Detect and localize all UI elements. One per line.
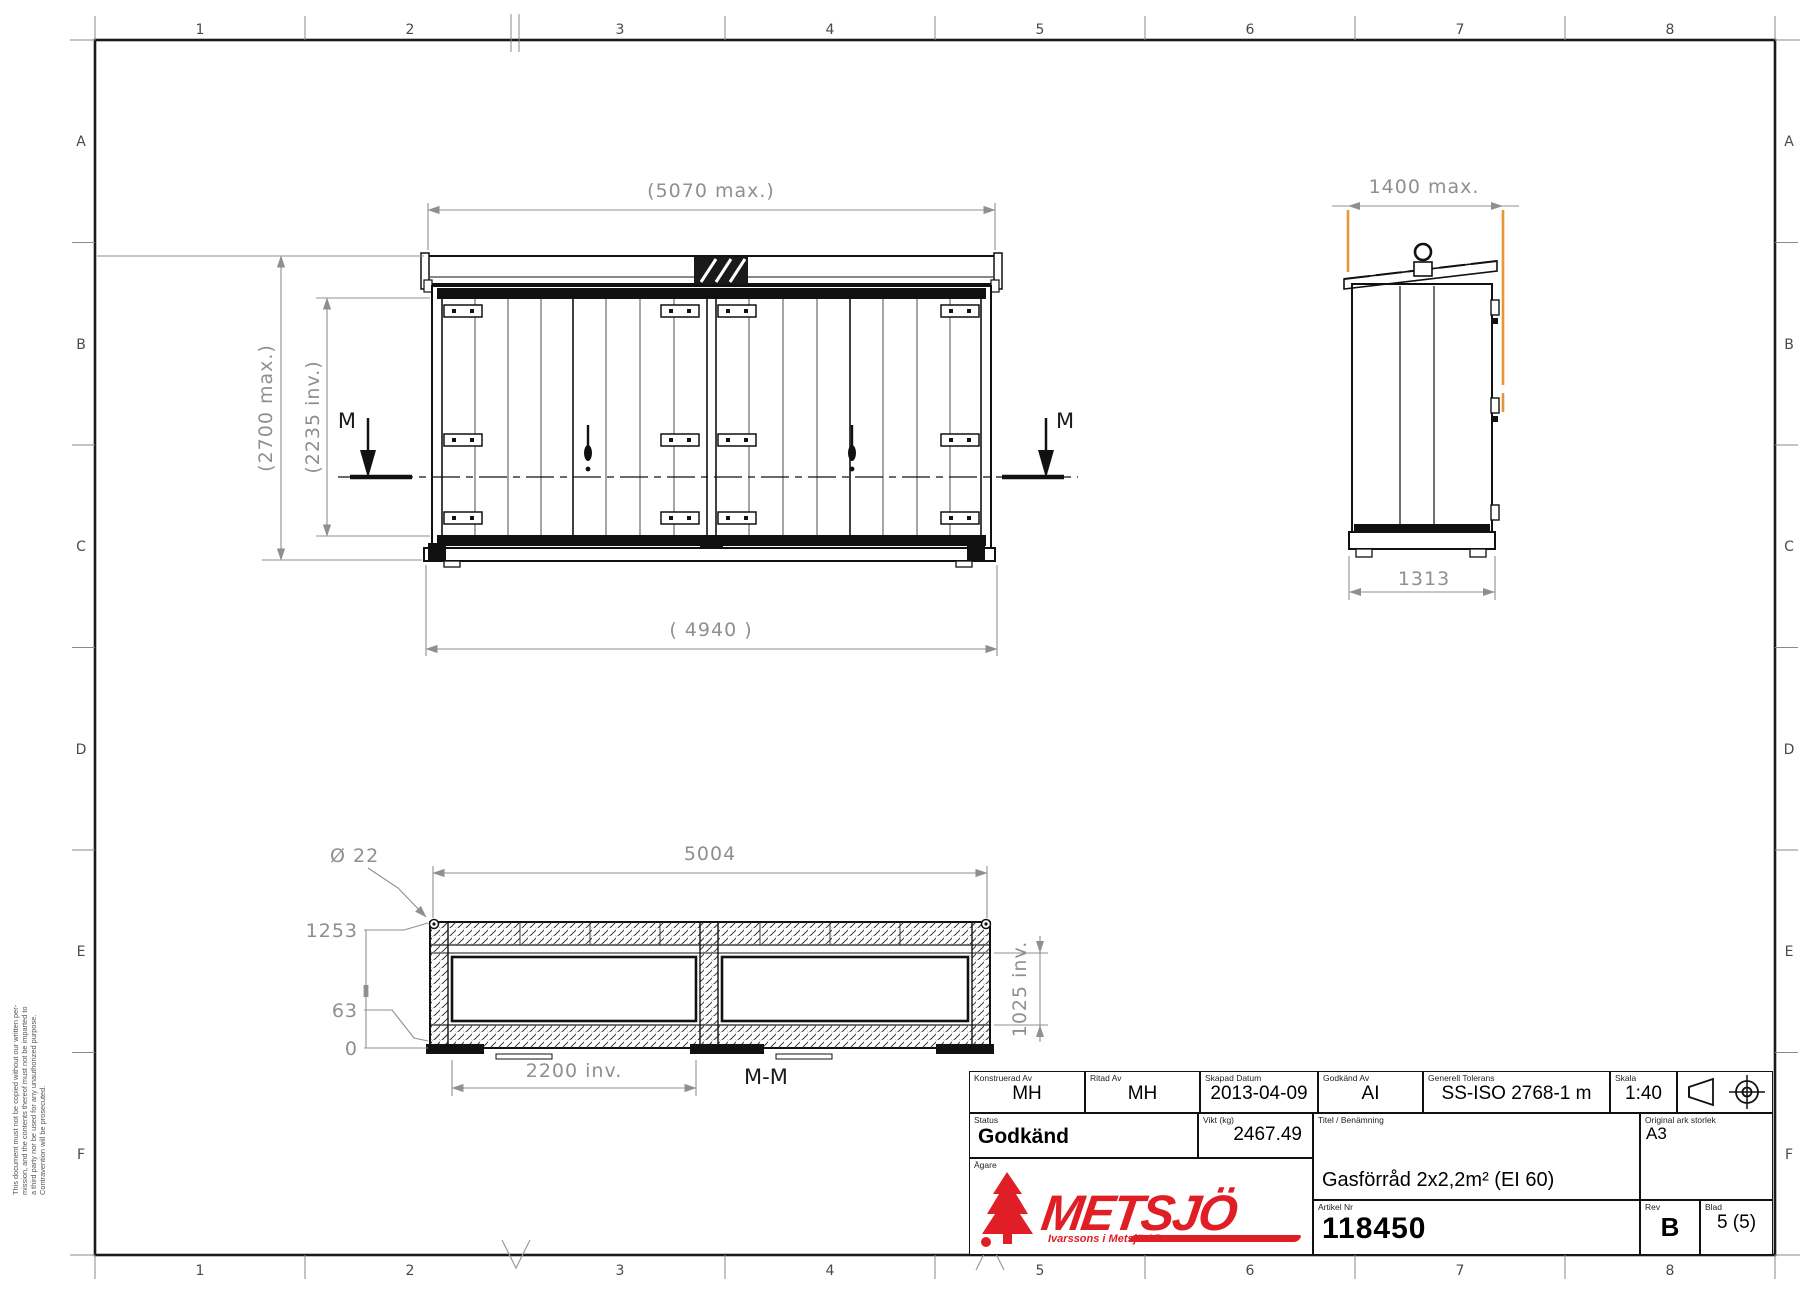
drawing-sheet: 1 2 3 4 5 6 7 8 1 2 3 4 5 6 7 8 A B C D …: [0, 0, 1800, 1292]
section-dim-inner-depth-label: 1025 inv.: [1009, 941, 1031, 1038]
copyright-line: a third party nor be used for any unauth…: [29, 1015, 38, 1195]
grid-col-label: 3: [616, 1263, 625, 1279]
field-drawn-by: Ritad Av MH: [1085, 1071, 1200, 1113]
field-label: Status: [970, 1114, 1197, 1125]
side-body: [1352, 284, 1499, 532]
front-view: (5070 max.): [97, 180, 1078, 656]
front-dim-height-max-label: (2700 max.): [255, 344, 277, 472]
field-owner: Ägare METSJÖ Ivarssons i Metsjö AB: [969, 1158, 1313, 1255]
field-status: Status Godkänd: [969, 1113, 1198, 1158]
grid-col-label: 4: [826, 1263, 835, 1279]
field-value: 5 (5): [1717, 1213, 1756, 1234]
field-label: Ägare: [970, 1159, 1312, 1170]
field-weight: Vikt (kg) 2467.49: [1198, 1113, 1313, 1158]
field-label: Blad: [1701, 1201, 1772, 1212]
side-highlight-lines: [1348, 210, 1503, 412]
field-label: Ritad Av: [1086, 1072, 1199, 1083]
grid-col-label: 1: [196, 1263, 205, 1279]
field-value: 2467.49: [1233, 1125, 1312, 1146]
side-view: 1400 max.: [1332, 176, 1519, 600]
section-dim-width-label: 5004: [684, 843, 736, 865]
field-value: 118450: [1314, 1212, 1639, 1245]
grid-col-label: 3: [616, 22, 625, 38]
copyright-line: This document must not be copied without…: [11, 1004, 20, 1195]
grid-col-label: 7: [1456, 22, 1465, 38]
field-value: 1:40: [1625, 1084, 1662, 1105]
side-roof: [1344, 244, 1497, 289]
section-label-mm: M-M: [744, 1065, 788, 1089]
field-article-number: Artikel Nr 118450: [1313, 1200, 1640, 1255]
grid-row-label: D: [76, 742, 87, 758]
field-value: Godkänd: [970, 1125, 1197, 1148]
front-dim-height-inner: [316, 298, 430, 536]
grid-col-label: 6: [1246, 1263, 1255, 1279]
section-ord-zero-label: 0: [345, 1038, 358, 1060]
grid-row-label: F: [1785, 1147, 1793, 1163]
field-label: Generell Tolerans: [1424, 1072, 1609, 1083]
grid-col-label: 2: [406, 22, 415, 38]
field-revision: Rev B: [1640, 1200, 1700, 1255]
section-ord-mid-label: 63: [332, 1000, 358, 1022]
drawing-title: Gasförråd 2x2,2m² (EI 60): [1314, 1169, 1639, 1199]
field-value: AI: [1362, 1084, 1380, 1105]
field-label: Titel / Benämning: [1314, 1114, 1639, 1125]
section-marker-m-right: M: [1056, 409, 1074, 433]
field-value: 2013-04-09: [1210, 1084, 1307, 1105]
grid-col-label: 5: [1036, 1263, 1045, 1279]
side-base: [1349, 532, 1495, 557]
front-door-handles: [584, 425, 856, 471]
lifting-eye-icon: [1415, 244, 1431, 260]
copyright-line: Contravention will be prosecuted.: [38, 1086, 47, 1195]
field-value: MH: [1012, 1084, 1042, 1105]
grid-row-label: A: [76, 134, 86, 150]
section-opening-left: [452, 957, 696, 1021]
front-dim-height-inner-label: (2235 inv.): [302, 360, 324, 473]
grid-row-label: D: [1784, 742, 1795, 758]
field-approved-by: Godkänd Av AI: [1318, 1071, 1423, 1113]
field-label: Konstruerad Av: [970, 1072, 1084, 1083]
field-label: Skala: [1611, 1072, 1676, 1083]
front-roof-vent: [694, 257, 748, 284]
section-marker-m-left: M: [338, 409, 356, 433]
section-opening-right: [722, 957, 968, 1021]
section-ordinate-dims: [364, 923, 428, 1048]
field-label: Skapad Datum: [1201, 1072, 1317, 1083]
field-designed-by: Konstruerad Av MH: [969, 1071, 1085, 1113]
grid-col-label: 4: [826, 22, 835, 38]
field-created-date: Skapad Datum 2013-04-09: [1200, 1071, 1318, 1113]
grid-col-label: 8: [1666, 1263, 1675, 1279]
field-value: B: [1661, 1213, 1680, 1242]
field-general-tolerance: Generell Tolerans SS-ISO 2768-1 m: [1423, 1071, 1610, 1113]
projection-symbol-cell: [1677, 1071, 1773, 1113]
first-angle-projection-icon: [1683, 1075, 1723, 1109]
grid-row-label: C: [1784, 539, 1794, 555]
field-value: SS-ISO 2768-1 m: [1442, 1084, 1592, 1105]
grid-row-label: E: [77, 944, 86, 960]
grid-row-label: E: [1785, 944, 1794, 960]
field-label: Rev: [1641, 1201, 1699, 1212]
field-scale: Skala 1:40: [1610, 1071, 1677, 1113]
grid-row-label: B: [76, 337, 86, 353]
grid-col-label: 8: [1666, 22, 1675, 38]
front-dim-width-frame: [426, 565, 997, 656]
metsjo-logo: METSJÖ Ivarssons i Metsjö AB: [970, 1170, 1312, 1254]
field-value: A3: [1641, 1125, 1772, 1144]
grid-col-label: 7: [1456, 1263, 1465, 1279]
field-sheet-size: Original ark storlek A3: [1640, 1113, 1773, 1200]
section-dim-width: [433, 866, 987, 918]
front-dim-width-frame-label: ( 4940 ): [669, 619, 752, 641]
spruce-tree-icon: [976, 1170, 1042, 1250]
grid-row-labels-left: A B C D E F: [76, 134, 87, 1163]
copyright-line: mission, and the contents thereof must n…: [20, 1006, 29, 1195]
section-dim-hole-label: Ø 22: [330, 845, 379, 867]
grid-col-label: 5: [1036, 22, 1045, 38]
field-title: Titel / Benämning Gasförråd 2x2,2m² (EI …: [1313, 1113, 1640, 1200]
copyright-note: This document must not be copied without…: [11, 1004, 47, 1195]
logo-swoosh: [1128, 1235, 1303, 1242]
grid-col-label: 2: [406, 1263, 415, 1279]
grid-col-label: 6: [1246, 22, 1255, 38]
grid-row-label: C: [76, 539, 86, 555]
section-hole-leader: [368, 868, 426, 917]
side-dim-width-max-label: 1400 max.: [1369, 176, 1480, 198]
front-dim-width-max: [428, 203, 995, 250]
grid-row-label: B: [1784, 337, 1794, 353]
grid-row-label: F: [77, 1147, 85, 1163]
front-door-planks: [475, 299, 950, 535]
front-body: [432, 286, 991, 548]
field-page: Blad 5 (5): [1700, 1200, 1773, 1255]
front-door-frames: [442, 299, 981, 535]
title-block: Konstruerad Av MH Ritad Av MH Skapad Dat…: [969, 1071, 1773, 1255]
front-dim-width-max-label: (5070 max.): [647, 180, 775, 202]
front-hinge-straps: [444, 305, 979, 524]
section-view: 5004 Ø 22: [306, 843, 1048, 1096]
grid-row-labels-right: A B C D E F: [1784, 134, 1795, 1163]
section-ord-top-label: 1253: [306, 920, 358, 942]
section-dim-inner-width-label: 2200 inv.: [526, 1060, 623, 1082]
grid-row-label: A: [1784, 134, 1794, 150]
projection-target-icon: [1727, 1073, 1767, 1111]
field-value: MH: [1128, 1084, 1158, 1105]
side-dim-base-label: 1313: [1398, 568, 1450, 590]
field-label: Artikel Nr: [1314, 1201, 1639, 1212]
field-label: Godkänd Av: [1319, 1072, 1422, 1083]
grid-col-label: 1: [196, 22, 205, 38]
